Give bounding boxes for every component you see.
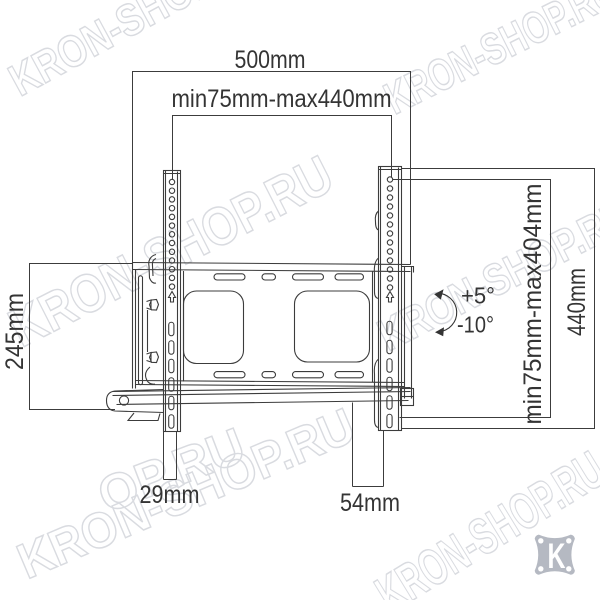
svg-text:29mm: 29mm <box>140 481 200 509</box>
svg-text:+5°: +5° <box>461 283 495 309</box>
svg-text:500mm: 500mm <box>235 46 306 74</box>
svg-text:245mm: 245mm <box>1 293 29 370</box>
svg-text:54mm: 54mm <box>340 489 400 517</box>
svg-text:min75mm-max440mm: min75mm-max440mm <box>172 85 392 113</box>
svg-text:-10°: -10° <box>457 312 494 338</box>
svg-text:min75mm-max404mm: min75mm-max404mm <box>519 184 547 425</box>
svg-text:440mm: 440mm <box>563 268 591 336</box>
svg-text:K: K <box>548 537 566 576</box>
